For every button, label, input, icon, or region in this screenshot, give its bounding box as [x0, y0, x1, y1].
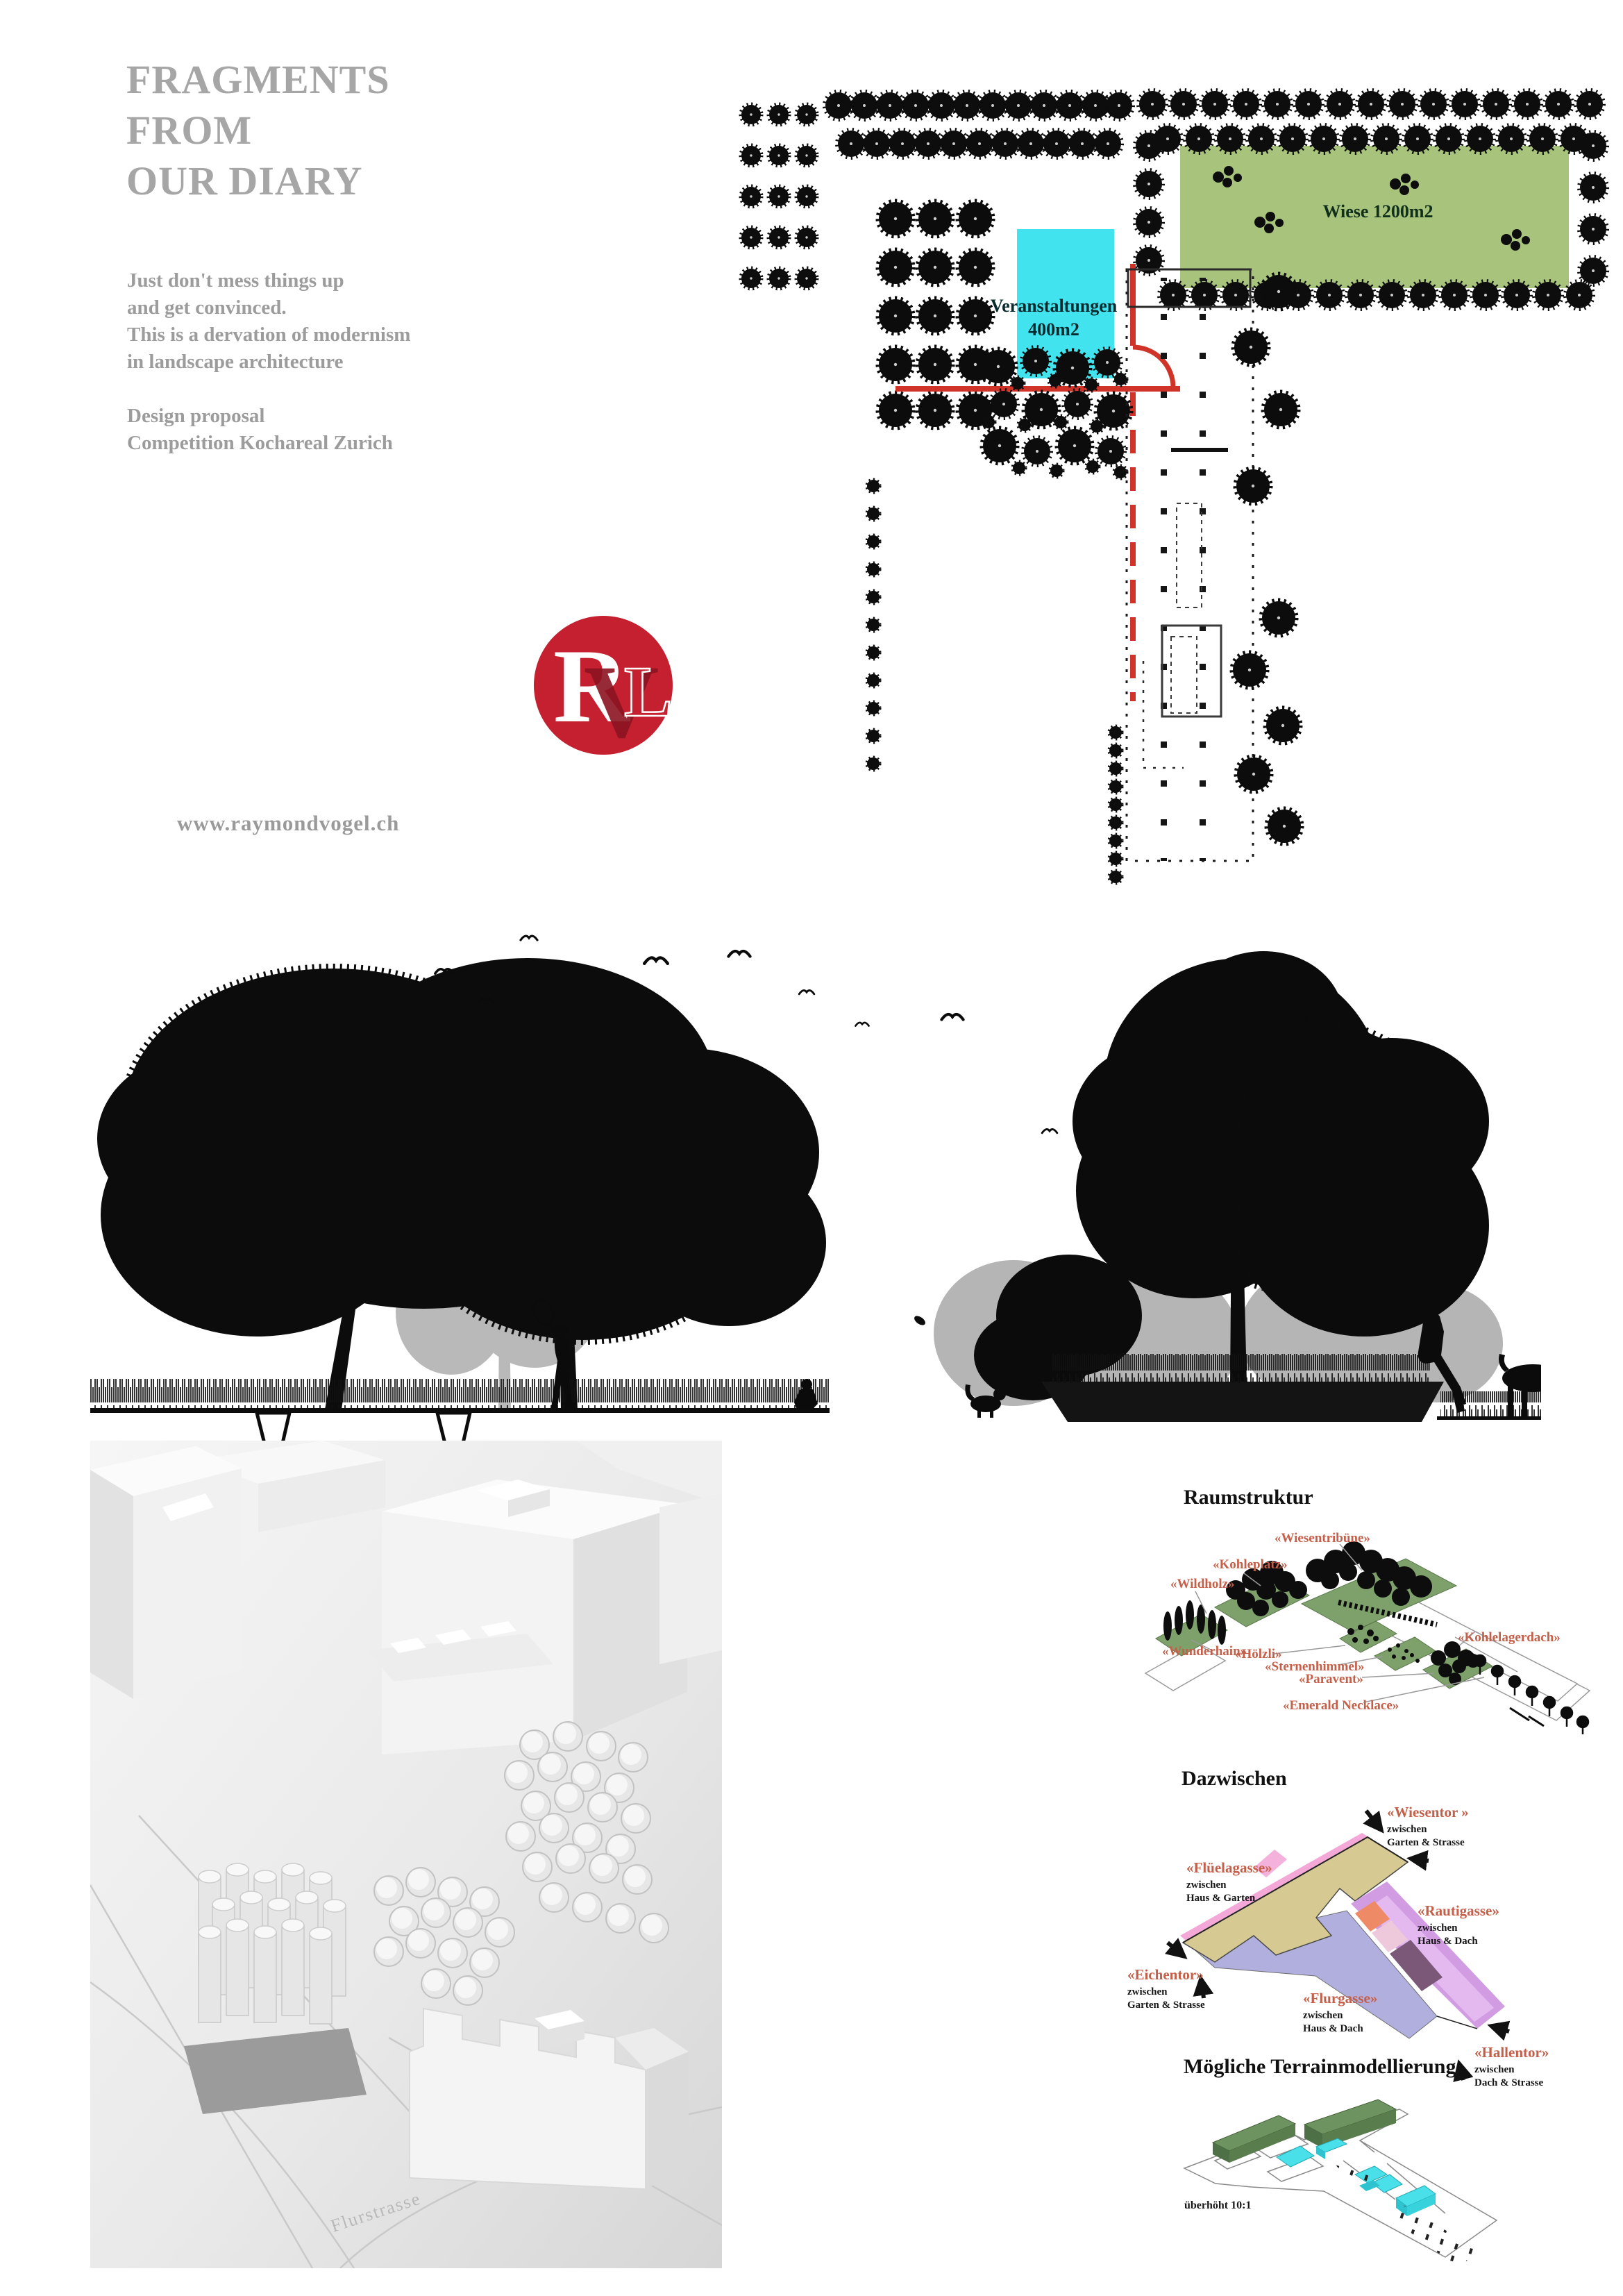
wiese-label: Wiese 1200m2: [1295, 201, 1461, 222]
label-kohleplatz: «Kohleplatz»: [1213, 1557, 1288, 1573]
gate-wiesentor-name: «Wiesentor »: [1387, 1804, 1469, 1820]
label-wiesentribuene: «Wiesentribüne»: [1275, 1531, 1370, 1546]
gate-hallentor-sub1: zwischen: [1474, 2063, 1515, 2077]
building-grid-icon: [1127, 269, 1253, 861]
dazwischen-diagram: [1111, 1757, 1623, 2090]
poster-page: FRAGMENTS FROM OUR DIARY Just don't mess…: [0, 0, 1623, 2296]
label-kohlelagerdach: «Kohlelagerdach»: [1458, 1630, 1561, 1645]
model-photo: Flurstrasse: [90, 1441, 722, 2268]
gate-eichentor-sub1: zwischen: [1127, 1986, 1168, 1999]
model-cylinders-left-icon: [199, 1863, 346, 2024]
terrain-diagram: [1166, 2097, 1583, 2296]
planter-box-icon: [1041, 1382, 1444, 1422]
gate-fluelagasse-sub2: Haus & Garten: [1186, 1892, 1255, 1905]
gate-rautigasse-sub1: zwischen: [1418, 1922, 1458, 1935]
terrain-note: überhöht 10:1: [1184, 2199, 1251, 2212]
gate-wiesentor-sub1: zwischen: [1387, 1823, 1427, 1836]
terrain-title: Mögliche Terrainmodellierung: [1184, 2055, 1456, 2079]
tree-grid-small-icon: [741, 105, 816, 288]
page-title-line2: FROM: [126, 105, 252, 156]
gate-hallentor-name: «Hallentor»: [1474, 2044, 1549, 2061]
terrain-dots-b-icon: [1388, 2204, 1480, 2268]
label-wildholz: «Wildholz»: [1170, 1577, 1235, 1592]
rv-logo: R V L: [525, 607, 681, 763]
model-sawtooth-building-icon: [410, 2009, 689, 2189]
page-title-line3: OUR DIARY: [126, 156, 362, 206]
hedge-rows-icon: [825, 92, 1132, 157]
right-tree-group-icon: [934, 951, 1503, 1422]
page-title-line1: FRAGMENTS: [126, 54, 390, 105]
gate-fluelagasse-sub1: zwischen: [1186, 1879, 1227, 1892]
label-wunderhain: «Wunderhain»: [1162, 1644, 1247, 1659]
label-paravent: «Paravent»: [1299, 1672, 1363, 1687]
intro-line4: in landscape architecture: [127, 349, 343, 376]
gate-fluelagasse-name: «Flüelagasse»: [1186, 1859, 1272, 1876]
proposal-line2: Competition Kochareal Zurich: [127, 430, 393, 457]
label-emerald-necklace: «Emerald Necklace»: [1283, 1698, 1399, 1713]
gate-rautigasse-sub2: Haus & Dach: [1418, 1935, 1478, 1948]
gate-rautigasse-name: «Rautigasse»: [1418, 1902, 1499, 1919]
raumstruktur-title: Raumstruktur: [1184, 1486, 1313, 1510]
gate-flurgasse-sub2: Haus & Dach: [1303, 2022, 1363, 2036]
intro-line3: This is a dervation of modernism: [127, 321, 410, 349]
gate-eichentor-name: «Eichentor»: [1127, 1966, 1204, 1983]
proposal-line1: Design proposal: [127, 403, 264, 430]
logo-letter-l: L: [624, 652, 672, 732]
flanking-trees-icon: [1233, 275, 1301, 843]
intro-line1: Just don't mess things up: [127, 267, 344, 294]
gate-eichentor-sub2: Garten & Strasse: [1127, 1999, 1205, 2012]
site-plan: [694, 42, 1623, 923]
hedge-column-icon: [867, 480, 1122, 883]
website-link[interactable]: www.raymondvogel.ch: [177, 811, 399, 836]
gate-flurgasse-sub1: zwischen: [1303, 2009, 1343, 2022]
gate-wiesentor-sub2: Garten & Strasse: [1387, 1836, 1465, 1850]
gate-hallentor-sub2: Dach & Strasse: [1474, 2077, 1543, 2090]
tree-silhouette-illustration: [83, 923, 1541, 1446]
falling-leaf-icon: [913, 1314, 927, 1327]
event-label-line1: Veranstaltungen: [970, 294, 1137, 317]
event-label-line2: 400m2: [970, 318, 1137, 341]
intro-line2: and get convinced.: [127, 294, 287, 321]
gate-flurgasse-name: «Flurgasse»: [1303, 1990, 1377, 2006]
